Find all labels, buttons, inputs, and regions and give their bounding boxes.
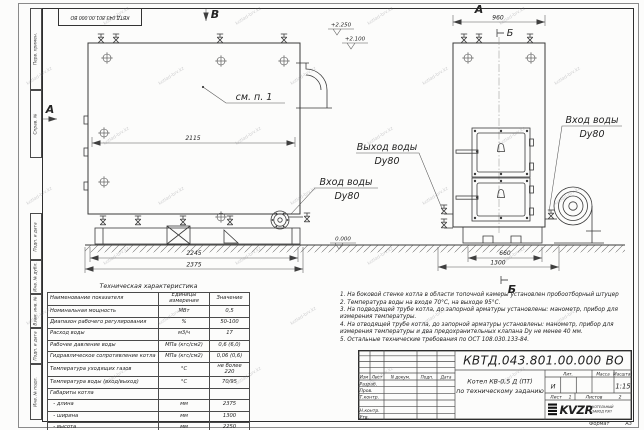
tech-cell: 0,5: [210, 306, 250, 317]
tech-cell: Расход воды: [48, 329, 159, 340]
tech-cell: 70/95: [210, 377, 250, 388]
center-mark-icon: [101, 52, 113, 64]
sign-row-label: Разраб.: [360, 381, 378, 387]
tech-cell: 0,06 (0,6): [210, 352, 250, 363]
tech-cell: [159, 388, 210, 399]
logo-text: KVZR: [560, 403, 593, 417]
tech-cell: 50-100: [210, 317, 250, 328]
elevation-2100: +2.100: [345, 37, 366, 43]
drain-valve-icon: [180, 216, 186, 225]
air-valve-icon: [476, 34, 482, 43]
lit-header: Лит.: [562, 372, 573, 377]
tech-cell: - высота: [48, 422, 159, 430]
center-mark-icon: [278, 55, 290, 67]
tech-table-title: Техническая характеристика: [47, 283, 250, 290]
note-item: 1. На боковой стенке котла в области топ…: [340, 292, 636, 299]
center-mark-icon: [462, 52, 474, 64]
outlet-size: Dy80: [374, 156, 399, 167]
drawing-sheet: Перв. примен. Справ. № Подп. и дата Инв.…: [0, 0, 644, 430]
tech-cell: МПа (кгс/см2): [159, 340, 210, 351]
tech-cell: %: [159, 317, 210, 328]
air-valve-icon: [461, 34, 467, 43]
section-tick-top: [497, 29, 504, 37]
air-valve-icon: [113, 34, 119, 43]
dim-2245: 2245: [186, 250, 201, 257]
rev-header: Изм: [360, 374, 369, 379]
sign-rows: Разраб. Пров. Т.контр. Н.контр. Утв.: [360, 381, 380, 420]
format-strip: Формат А3: [480, 421, 632, 427]
tech-cell: 0,6 (6,0): [210, 340, 250, 351]
center-mark-icon: [98, 127, 110, 139]
dim-660: 660: [499, 250, 511, 257]
elevation-mark: [342, 43, 368, 49]
elevation-mark: [328, 29, 354, 35]
inlet-valve-icon: [548, 210, 554, 219]
tech-row: Номинальная мощностьМВт0,5: [48, 306, 250, 317]
sheet-label: Лист: [549, 394, 562, 400]
scale-header: Масштаб: [613, 372, 632, 377]
tech-row: Рабочее давление водыМПа (кгс/см2)0,6 (6…: [48, 340, 250, 351]
section-mark-top: Б: [507, 28, 514, 39]
view-label-a-top: А: [474, 3, 484, 16]
tech-cell: 1300: [210, 411, 250, 422]
tech-row: Габариты котла: [48, 388, 250, 399]
sheets-value: 2: [619, 394, 622, 400]
tech-row: Температура воды (вход/выход)°С70/95: [48, 377, 250, 388]
inlet-front-size: Dy80: [334, 191, 359, 202]
tech-cell: Диапазон рабочего регулирования: [48, 317, 159, 328]
elevation-zero: 0.000: [335, 237, 351, 243]
rev-header: N докум.: [391, 374, 410, 379]
tech-cell: - длина: [48, 400, 159, 411]
outlet-valve-icon: [441, 205, 447, 214]
tech-table-grid: Наименование показателя Единицы измерени…: [47, 292, 250, 430]
tech-row: - ширинамм1300: [48, 411, 250, 422]
sign-row-label: Пров.: [360, 388, 373, 394]
format-label: Формат: [589, 421, 609, 427]
lit-value: И: [551, 383, 556, 391]
rev-header: Лист: [371, 374, 383, 379]
tech-row: Расход водым3/ч17: [48, 329, 250, 340]
outlet-elbow-pipe: [296, 63, 332, 108]
dim-2375: 2375: [186, 262, 201, 269]
elevation-2250: +2.250: [331, 23, 352, 29]
skid-base-side: [463, 227, 542, 243]
tech-cell: 2375: [210, 400, 250, 411]
skid-base-front: [95, 228, 300, 244]
view-label-a-left: А: [45, 103, 55, 116]
sign-row-label: Утв.: [360, 415, 369, 420]
tech-cell: МВт: [159, 306, 210, 317]
tech-table: Техническая характеристика Наименование …: [47, 283, 250, 430]
tech-cell: Гидравлическое сопротивление котла: [48, 352, 159, 363]
tech-cell: Температура воды (вход/выход): [48, 377, 159, 388]
sign-row-label: Т.контр.: [360, 395, 380, 401]
drain-valve-icon: [135, 216, 141, 225]
tech-row: - высотамм2250: [48, 422, 250, 430]
tech-cell: мм: [159, 400, 210, 411]
tech-row: Диапазон рабочего регулирования%50-100: [48, 317, 250, 328]
scale-value: 1:15: [615, 383, 630, 391]
format-value: А3: [625, 421, 632, 427]
tech-col-header-value: Значение: [210, 292, 250, 306]
tech-cell: МПа (кгс/см2): [159, 352, 210, 363]
blower-fan: [554, 187, 592, 225]
tech-cell: мм: [159, 411, 210, 422]
rev-header: Подп.: [421, 374, 434, 379]
air-valve-icon: [217, 34, 223, 43]
notes: 1. На боковой стенке котла в области топ…: [340, 292, 636, 344]
inlet-side-size: Dy80: [579, 129, 604, 140]
tech-cell: - ширина: [48, 411, 159, 422]
note-item: 5. Остальные технические требования по О…: [340, 337, 636, 344]
dim-960: 960: [492, 15, 504, 22]
lower-furnace-door: [472, 178, 530, 221]
tech-row: Гидравлическое сопротивление котлаМПа (к…: [48, 352, 250, 363]
air-valve-icon: [527, 34, 533, 43]
door-handle: [456, 150, 478, 153]
tech-cell: Рабочее давление воды: [48, 340, 159, 351]
center-mark-icon: [525, 52, 537, 64]
tech-cell: Температура уходящих газов: [48, 363, 159, 377]
logo-subtitle-2: ЗАВОД РЭП: [592, 410, 612, 414]
tech-table-body: Номинальная мощностьМВт0,5Диапазон рабоч…: [48, 306, 250, 430]
center-mark-icon: [215, 55, 227, 67]
inlet-side-label: Вход воды: [565, 115, 619, 126]
outlet-valve-icon: [441, 219, 447, 228]
dim-1300: 1300: [490, 260, 505, 267]
logo-subtitle-1: КОТЕЛЬНЫЙ: [592, 404, 614, 409]
drain-valve-icon: [100, 216, 106, 225]
tech-cell: °С: [159, 363, 210, 377]
tech-cell: 2250: [210, 422, 250, 430]
doc-number: КВТД.043.801.00.000 ВО: [463, 354, 624, 368]
ground-line: [85, 245, 625, 252]
tech-cell: м3/ч: [159, 329, 210, 340]
inlet-front-label: Вход воды: [319, 177, 373, 188]
sheets-label: Листов: [585, 394, 603, 400]
product-name-line2: по техническому заданию: [456, 388, 544, 395]
tech-cell: 17: [210, 329, 250, 340]
tech-cell: Номинальная мощность: [48, 306, 159, 317]
center-mark-icon: [215, 211, 227, 223]
tech-cell: [210, 388, 250, 399]
drain-valve-icon: [227, 216, 233, 225]
boiler-body-front: [88, 43, 300, 214]
tech-col-header-name: Наименование показателя: [48, 292, 159, 306]
outlet-label: Выход воды: [357, 142, 418, 153]
rev-header: Дата: [440, 374, 452, 379]
note-item: 2. Температура воды на входе 70°С, на вы…: [340, 300, 636, 307]
center-mark-icon: [98, 176, 110, 188]
product-name-line1: Котел КВ-0,5 Д (ПТ): [467, 379, 532, 386]
dim-2115: 2115: [185, 135, 200, 142]
air-valve-icon: [98, 34, 104, 43]
tech-col-header-units: Единицы измерения: [159, 292, 210, 306]
tech-cell: °С: [159, 377, 210, 388]
note-item: 4. На отводящей трубе котла, до запорной…: [340, 322, 636, 336]
title-block: КВТД.043.801.00.000 ВО Изм Лист N докум.…: [358, 350, 632, 420]
sheet-value: 1: [569, 394, 572, 400]
mass-header: Масса: [596, 372, 610, 377]
view-label-v: В: [211, 8, 219, 21]
tech-row: - длинамм2375: [48, 400, 250, 411]
note-item: 3. На подводящей трубе котла, до запорно…: [340, 307, 636, 321]
air-valve-icon: [281, 34, 287, 43]
upper-furnace-door: [472, 128, 530, 177]
callout-see-item: см. п. 1: [236, 92, 273, 103]
door-handle: [456, 196, 478, 199]
logo-bars-icon: [548, 404, 557, 416]
inlet-valve-icon: [304, 213, 310, 222]
sign-row-label: Н.контр.: [360, 408, 380, 414]
kvzr-logo: KVZR КОТЕЛЬНЫЙ ЗАВОД РЭП: [548, 403, 614, 417]
tech-cell: Габариты котла: [48, 388, 159, 399]
tech-cell: мм: [159, 422, 210, 430]
tech-cell: не более 220: [210, 363, 250, 377]
tech-row: Температура уходящих газов°Сне более 220: [48, 363, 250, 377]
